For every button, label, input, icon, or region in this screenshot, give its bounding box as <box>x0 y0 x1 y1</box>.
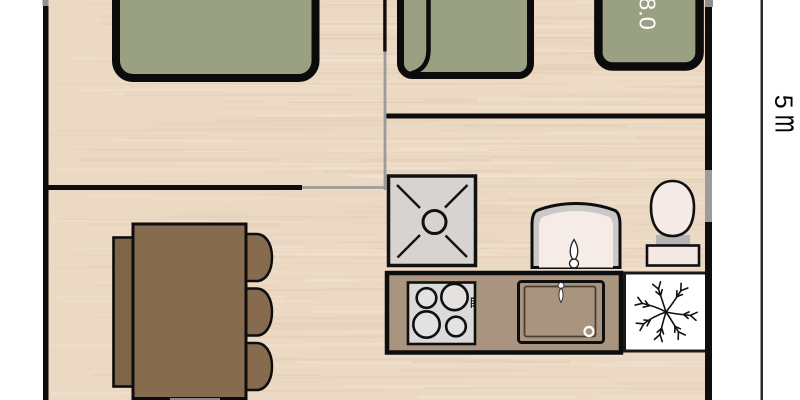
svg-text:8.0: 8.0 <box>635 0 661 30</box>
svg-text:m: m <box>768 115 800 133</box>
svg-text:5: 5 <box>769 95 797 109</box>
